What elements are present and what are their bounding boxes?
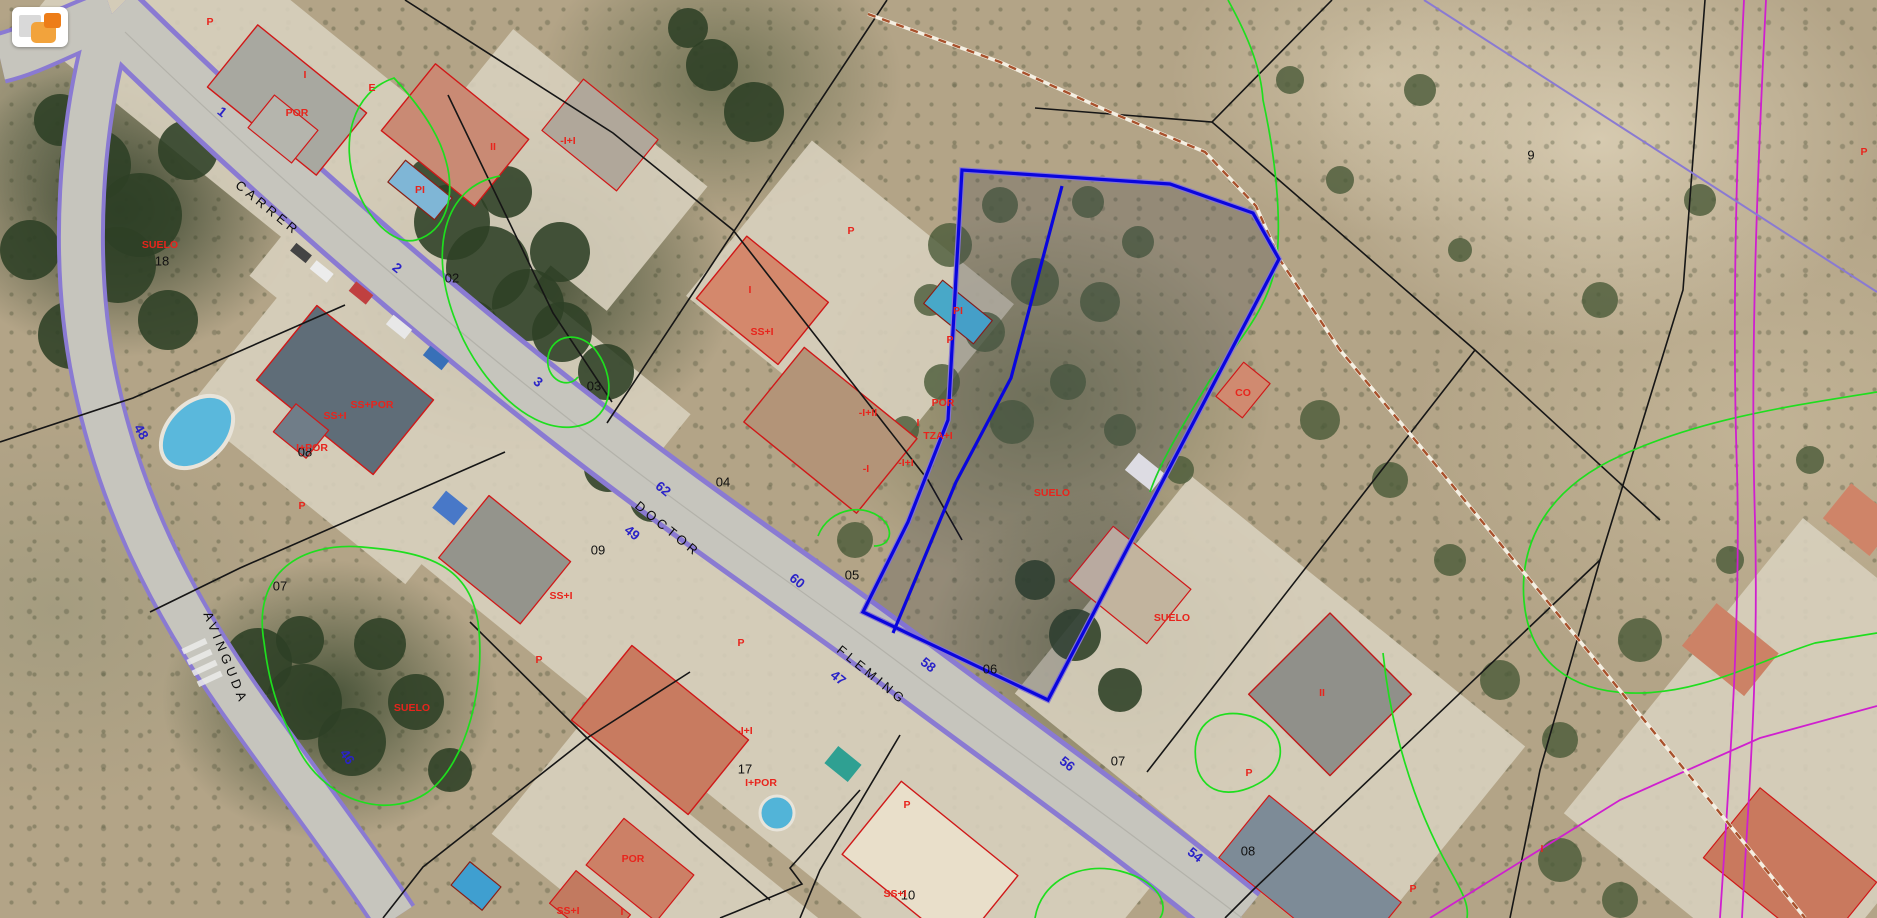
building-use-label: POR	[286, 108, 309, 119]
house-number-label: 47	[828, 668, 848, 688]
house-number-label: 60	[787, 571, 807, 591]
building-use-label: SUELO	[1034, 488, 1070, 499]
parcel-number-label: 05	[845, 569, 859, 582]
layers-icon	[44, 13, 61, 28]
building-use-label: -I+I	[737, 726, 752, 737]
map-labels: CARRERDOCTORFLEMINGAVINGUDA1234846624960…	[0, 0, 1877, 918]
building-use-label: P	[1245, 768, 1252, 779]
building-use-label: -I+II	[859, 408, 877, 419]
building-use-label: P	[1860, 147, 1867, 158]
building-use-label: -I	[863, 464, 869, 475]
building-use-label: I+POR	[296, 443, 328, 454]
house-number-label: 62	[653, 479, 673, 499]
building-use-label: P	[1409, 884, 1416, 895]
building-use-label: SUELO	[142, 240, 178, 251]
building-use-label: I	[304, 70, 307, 81]
house-number-label: 1	[215, 104, 229, 119]
building-use-label: -I+I	[898, 458, 913, 469]
building-use-label: POR	[622, 854, 645, 865]
building-use-label: SS+I	[323, 411, 346, 422]
parcel-number-label: 17	[738, 763, 752, 776]
parcel-number-label: 9	[1527, 149, 1534, 162]
house-number-label: 56	[1057, 754, 1077, 774]
building-use-label: P	[206, 17, 213, 28]
building-use-label: P	[946, 335, 953, 346]
parcel-number-label: 02	[445, 272, 459, 285]
house-number-label: 49	[622, 523, 642, 543]
building-use-label: E	[368, 83, 375, 94]
building-use-label: CO	[1235, 388, 1251, 399]
house-number-label: 58	[918, 655, 938, 675]
house-number-label: 46	[337, 747, 357, 767]
building-use-label: P	[298, 501, 305, 512]
building-use-label: P	[737, 638, 744, 649]
building-use-label: -I+I	[560, 136, 575, 147]
building-use-label: SS+POR	[351, 400, 394, 411]
parcel-number-label: 03	[587, 380, 601, 393]
layers-button[interactable]	[12, 7, 68, 47]
parcel-number-label: 08	[1241, 845, 1255, 858]
parcel-number-label: 07	[273, 580, 287, 593]
building-use-label: I	[749, 285, 752, 296]
building-use-label: SS+I	[883, 889, 906, 900]
building-use-label: PI	[415, 185, 425, 196]
building-use-label: SS+I	[549, 591, 572, 602]
building-use-label: TZA+I	[923, 431, 952, 442]
street-name-label: DOCTOR	[633, 499, 703, 560]
house-number-label: 54	[1185, 845, 1205, 865]
street-name-label: AVINGUDA	[201, 610, 250, 707]
building-use-label: SS+I	[750, 327, 773, 338]
parcel-number-label: 07	[1111, 755, 1125, 768]
building-use-label: I+POR	[745, 778, 777, 789]
map-canvas[interactable]: CARRERDOCTORFLEMINGAVINGUDA1234846624960…	[0, 0, 1877, 918]
parcel-number-label: 09	[591, 544, 605, 557]
building-use-label: SUELO	[394, 703, 430, 714]
building-use-label: SUELO	[1154, 613, 1190, 624]
building-use-label: II	[490, 142, 496, 153]
parcel-number-label: 04	[716, 476, 730, 489]
building-use-label: PI	[953, 306, 963, 317]
building-use-label: P	[535, 655, 542, 666]
building-use-label: P	[903, 800, 910, 811]
house-number-label: 3	[531, 374, 545, 389]
house-number-label: 48	[131, 422, 150, 442]
parcel-number-label: 18	[155, 255, 169, 268]
building-use-label: II	[1319, 688, 1325, 699]
building-use-label: P	[847, 226, 854, 237]
building-use-label: POR	[932, 398, 955, 409]
building-use-label: I	[1541, 844, 1544, 855]
parcel-number-label: 06	[983, 663, 997, 676]
house-number-label: 2	[390, 260, 404, 275]
building-use-label: SS+I	[556, 906, 579, 917]
building-use-label: I	[917, 418, 920, 429]
street-name-label: CARRER	[233, 178, 303, 238]
building-use-label: I	[621, 907, 624, 918]
